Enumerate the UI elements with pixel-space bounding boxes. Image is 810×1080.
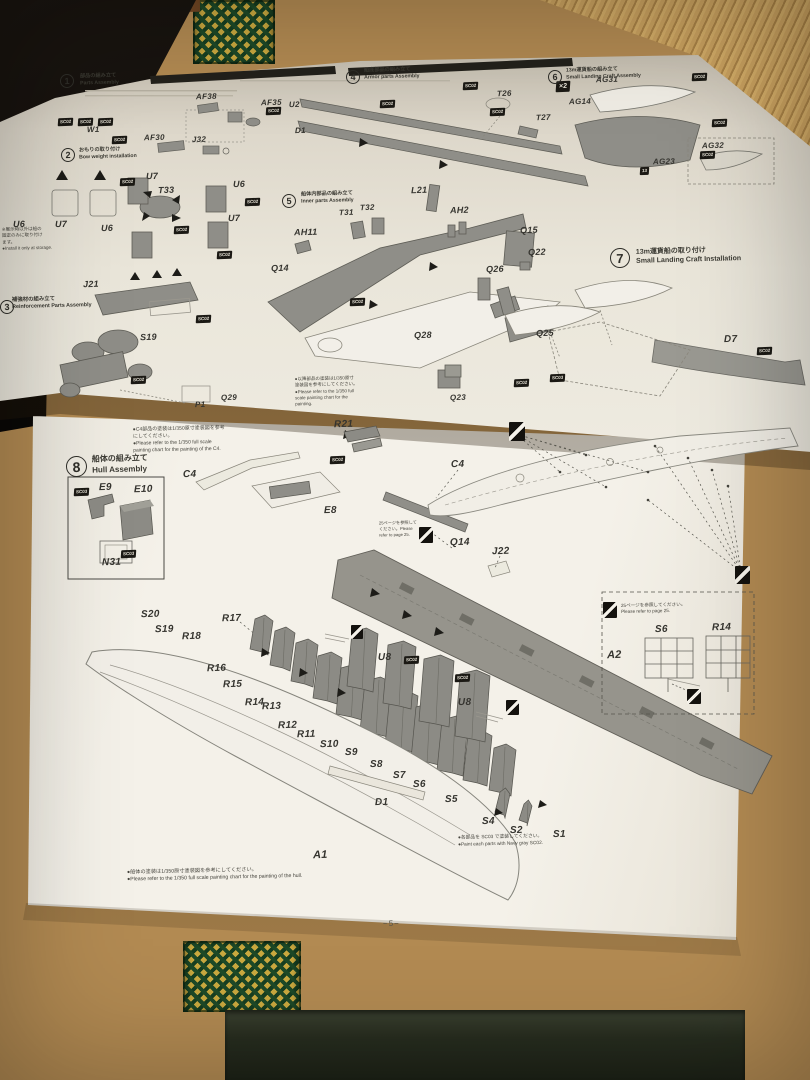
part-label: Q26 [486,265,504,274]
paint-color-chip: 13 [640,167,650,175]
step8-top-note: ●C4部品の塗装は1/350原寸塗装図を参考 にしてください。 ●Please … [133,423,296,454]
part-label: R12 [278,721,298,732]
paint-color-chip: SC02 [266,107,282,115]
part-label: T31 [339,209,354,217]
part-label: R11 [297,730,316,740]
part-label: T27 [536,114,551,122]
paint-color-chip: SC02 [58,118,74,126]
step-title: おもりの取り付け Bow weight installation [79,145,189,162]
photo-of-model-kit-instructions: AF38AF35W1AF30J32U2D1T26T27U6U7U7T33U6U6… [0,0,810,1080]
part-label: S19 [155,625,174,635]
part-label: W1 [87,126,100,134]
part-label: U7 [146,172,158,181]
step-number: 1 [60,74,74,88]
paint-each-note: ●各部品を SC03 で塗装してください。 ●Paint each parts … [458,832,626,849]
step-title: 部品の組み立て Parts Assembly [80,71,190,88]
part-label: AG14 [569,98,591,107]
part-label: S20 [141,610,160,620]
part-label: P1 [195,401,206,409]
part-label: Q14 [271,264,289,273]
paint-color-chip: SC03 [74,488,90,496]
paint-color-chip: SC03 [121,550,137,558]
paint-color-chip: SC02 [174,226,190,234]
paint-color-chip: SC02 [757,347,773,355]
part-label: R16 [207,664,227,675]
hull-bottom-note: ●船体の塗装は1/350原寸塗装図を参考にしてください。 ●Please ref… [127,864,369,884]
part-label: E8 [324,506,337,516]
part-label: Q22 [528,248,546,257]
part-label: S6 [413,780,426,790]
part-label: D7 [724,335,738,345]
step-number: 2 [61,148,75,162]
paint-color-chip: SC02 [131,376,147,384]
step-number: 4 [346,70,360,84]
part-label: S8 [370,760,383,770]
part-label: AH11 [294,228,318,238]
part-label: AF30 [144,134,165,143]
part-label: U2 [289,101,300,109]
step-number: 8 [66,456,88,478]
attention-marker-icon [735,566,750,584]
part-label: U6 [101,224,113,233]
paint-color-chip: SC02 [350,298,366,306]
part-label: R15 [223,680,243,691]
paint-color-chip: SC02 [712,119,728,127]
part-label: A1 [313,850,328,861]
part-label: A2 [607,650,622,661]
paint-color-chip: SC02 [514,379,530,387]
attention-marker-icon [351,625,363,639]
part-label: T33 [158,186,175,195]
part-label: Q14 [450,538,470,549]
part-label: D1 [375,798,389,808]
step-number: 7 [610,248,631,269]
part-label: R17 [222,614,242,625]
step-title: 船体の組み立て Hull Assembly [92,451,213,476]
paint-color-chip: SC03 [550,374,566,382]
part-label: E10 [134,485,153,495]
paint-color-chip: SC02 [404,656,420,664]
paint-color-chip: SC02 [380,100,396,108]
paint-color-chip: SC02 [463,82,479,90]
paint-color-chip: SC02 [112,136,128,144]
step-title: 船底部品の組み立て Armor parts Assembly [364,64,484,81]
part-label: Q28 [414,331,432,340]
attention-marker-icon [506,700,519,715]
part-label: Q25 [536,329,554,338]
step-title: 13m運貨船の組み立て Small Landing Craft Assembly [566,64,686,81]
part-label: U8 [378,653,392,663]
paint-color-chip: SC02 [455,674,471,682]
part-label: AF38 [196,93,217,102]
part-label: R21 [334,420,354,431]
step-title: 補強材の組み立て Reinforcement Parts Assembly [12,295,98,312]
part-label: Q23 [450,394,466,402]
part-label: R14 [712,623,732,634]
part-label: AG23 [653,158,675,167]
part-label: T32 [360,204,375,212]
part-label: N31 [102,558,122,569]
paint-color-chip: SC02 [490,108,506,116]
part-label: J21 [83,280,99,289]
part-label: E9 [99,483,112,493]
step-number: 5 [282,194,296,208]
part-label: S5 [445,795,458,805]
part-label: R18 [182,632,202,643]
step5-note: ●以降部品の塗装は1/350原寸 塗装図を参考にしてください。 ●Please … [295,374,428,408]
part-label: AG32 [702,142,724,151]
part-label: T26 [497,90,512,98]
attention-marker-icon [687,689,701,704]
part-label: S19 [140,333,157,342]
paint-color-chip: SC02 [78,118,94,126]
part-label: U8 [458,698,472,708]
part-label: S9 [345,748,358,758]
part-label: D1 [295,127,306,135]
part-label: U6 [233,180,245,189]
step-title: 船体内部品の組み立て Inner parts Assembly [301,188,421,205]
page25-right-note: 25ページを参照してください。 Please refer to page 25. [621,601,717,616]
paint-color-chip: SC02 [245,198,261,206]
part-label: U7 [228,214,240,223]
paint-color-chip: SC02 [330,456,346,464]
part-label: C4 [451,460,465,470]
printed-text-layer: AF38AF35W1AF30J32U2D1T26T27U6U7U7T33U6U6… [0,0,810,1080]
part-label: J22 [492,547,510,557]
part-label: S7 [393,771,406,781]
part-label: S6 [655,625,668,635]
paint-color-chip: SC02 [700,151,716,159]
part-label: S10 [320,740,339,750]
page-number: −5− [383,919,400,928]
part-label: Q29 [221,394,237,402]
paint-color-chip: SC02 [120,178,136,186]
part-label: S4 [482,817,495,827]
attention-marker-icon [603,602,617,618]
paint-color-chip: SC02 [692,73,708,81]
paint-color-chip: SC02 [196,315,212,323]
paint-color-chip: SC02 [98,118,114,126]
page25-left-note: 25ページを参照して ください。Please refer to page 25. [379,520,425,539]
part-label: J32 [192,136,206,144]
paint-color-chip: SC02 [217,251,233,259]
step2-note: ※展示時以外は船の 固定のみに取り付け ます。 ●Install it only… [2,225,83,252]
step-title: 13m運貨船の取り付け Small Landing Craft Installa… [636,244,776,267]
part-label: R13 [262,702,282,713]
attention-marker-icon [509,422,525,441]
part-label: Q15 [520,226,538,235]
part-label: AH2 [450,206,469,215]
